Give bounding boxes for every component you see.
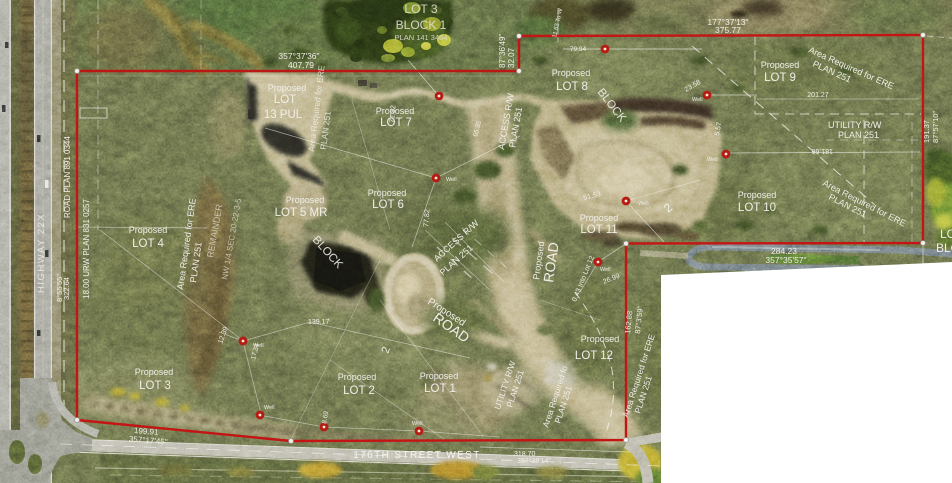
- svg-text:LOT 9: LOT 9: [764, 72, 796, 84]
- svg-text:Well: Well: [264, 405, 275, 411]
- svg-text:PLAN 141 3464: PLAN 141 3464: [395, 33, 448, 42]
- svg-text:375.77: 375.77: [715, 25, 741, 35]
- svg-text:Proposed: Proposed: [580, 213, 619, 223]
- svg-text:LOT 4: LOT 4: [132, 238, 164, 250]
- svg-text:Proposed: Proposed: [368, 188, 407, 198]
- svg-text:79.94: 79.94: [570, 46, 587, 53]
- svg-text:357°38'14": 357°38'14": [517, 457, 551, 465]
- svg-text:Well: Well: [600, 267, 611, 273]
- svg-text:PLAN 251: PLAN 251: [838, 130, 879, 140]
- svg-text:87°57'10": 87°57'10": [931, 111, 940, 143]
- svg-text:32.07: 32.07: [507, 47, 516, 68]
- svg-text:LOT 2: LOT 2: [343, 385, 375, 397]
- svg-text:LOT 3: LOT 3: [139, 380, 171, 392]
- svg-text:Well: Well: [638, 201, 649, 207]
- svg-text:181.66: 181.66: [811, 147, 833, 154]
- svg-text:18.00 URW PLAN 831 0257: 18.00 URW PLAN 831 0257: [82, 199, 91, 299]
- svg-text:UTILITY R/W: UTILITY R/W: [828, 120, 882, 130]
- svg-text:357°35'57": 357°35'57": [765, 255, 806, 265]
- svg-text:Well: Well: [412, 421, 423, 427]
- svg-text:BLOCK 1: BLOCK 1: [396, 18, 447, 32]
- svg-text:Proposed: Proposed: [135, 367, 174, 377]
- svg-text:Proposed: Proposed: [286, 195, 325, 205]
- svg-text:Well: Well: [707, 157, 718, 163]
- svg-text:LOT 8: LOT 8: [556, 81, 588, 93]
- svg-text:139.17: 139.17: [308, 319, 330, 326]
- svg-text:ROAD PLAN 891 0344: ROAD PLAN 891 0344: [63, 136, 72, 218]
- svg-text:176TH STREET WEST: 176TH STREET WEST: [353, 450, 481, 461]
- svg-text:13 PUL: 13 PUL: [264, 109, 303, 121]
- svg-text:Proposed: Proposed: [129, 225, 168, 235]
- svg-text:Proposed: Proposed: [338, 372, 377, 382]
- svg-text:LOT 6: LOT 6: [372, 199, 404, 211]
- svg-text:LOT 3: LOT 3: [404, 2, 437, 16]
- svg-text:BLOC: BLOC: [936, 241, 952, 255]
- svg-text:Well: Well: [692, 97, 703, 103]
- svg-text:Proposed: Proposed: [420, 371, 459, 381]
- svg-text:407.79: 407.79: [288, 60, 314, 70]
- svg-text:318.70: 318.70: [514, 451, 536, 458]
- svg-text:191.37: 191.37: [922, 120, 931, 143]
- svg-text:201.27: 201.27: [807, 92, 829, 99]
- svg-text:LOT 1: LOT 1: [424, 383, 456, 395]
- svg-text:Proposed: Proposed: [268, 83, 307, 93]
- svg-text:LOT: LOT: [940, 227, 952, 241]
- svg-text:Proposed: Proposed: [552, 68, 591, 78]
- svg-text:322.64: 322.64: [62, 277, 71, 300]
- svg-text:LOT 5 MR: LOT 5 MR: [275, 207, 328, 219]
- svg-text:LOT 10: LOT 10: [738, 202, 776, 214]
- svg-text:Proposed: Proposed: [761, 60, 800, 70]
- svg-text:Well: Well: [446, 177, 457, 183]
- svg-text:LOT 12: LOT 12: [575, 350, 613, 362]
- svg-text:Proposed: Proposed: [581, 334, 620, 344]
- svg-text:87°36'49": 87°36'49": [498, 34, 507, 68]
- svg-text:HIGHWAY 22X: HIGHWAY 22X: [36, 213, 47, 293]
- svg-text:Proposed: Proposed: [738, 190, 777, 200]
- svg-text:LOT: LOT: [274, 94, 296, 106]
- svg-text:LOT 11: LOT 11: [580, 224, 617, 236]
